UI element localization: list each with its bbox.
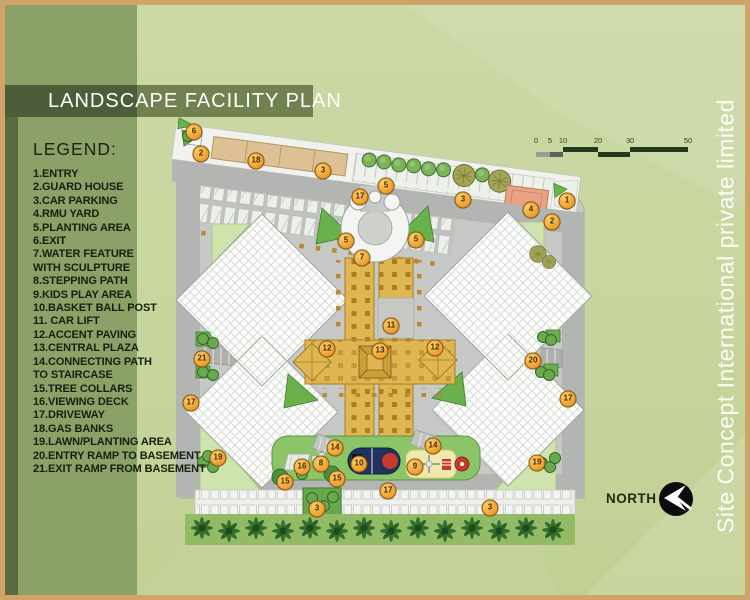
north-indicator: NORTH xyxy=(598,479,718,527)
water-feature xyxy=(341,186,409,262)
legend-item: 19.LAWN/PLANTING AREA xyxy=(33,436,206,449)
amenity-band xyxy=(272,430,480,485)
legend-list: 1.ENTRY2.GUARD HOUSE3.CAR PARKING4.RMU Y… xyxy=(33,168,206,476)
basketball-court xyxy=(348,448,400,474)
legend-item: 6.EXIT xyxy=(33,235,206,248)
legend-item: 12.ACCENT PAVING xyxy=(33,329,206,342)
legend-item: 9.KIDS PLAY AREA xyxy=(33,289,206,302)
scale-label: 5 xyxy=(548,136,552,145)
car-lift xyxy=(378,298,414,338)
legend-item: 15.TREE COLLARS xyxy=(33,383,206,396)
legend-item: 4.RMU YARD xyxy=(33,208,206,221)
legend-item: 10.BASKET BALL POST xyxy=(33,302,206,315)
sidebar-top-block xyxy=(5,5,137,85)
scale-label: 20 xyxy=(594,136,602,145)
scale-bar-segments xyxy=(528,147,703,161)
scale-label: 30 xyxy=(626,136,634,145)
scale-bar: 0510203050 xyxy=(528,136,703,164)
legend-item: TO STAIRCASE xyxy=(33,369,206,382)
site-plan-drawing xyxy=(172,112,612,552)
company-side-text: Site Concept International private limit… xyxy=(713,99,740,533)
north-label: NORTH xyxy=(606,491,657,506)
legend-item: 14.CONNECTING PATH xyxy=(33,356,206,369)
legend-item: 5.PLANTING AREA xyxy=(33,222,206,235)
legend-heading: LEGEND: xyxy=(33,139,117,160)
legend-item: 11. CAR LIFT xyxy=(33,315,206,328)
legend-item: 13.CENTRAL PLAZA xyxy=(33,342,206,355)
legend-item: 7.WATER FEATURE xyxy=(33,248,206,261)
page-title-text: LANDSCAPE FACILITY PLAN xyxy=(48,90,342,112)
kids-play-area xyxy=(406,450,456,478)
legend-item: 16.VIEWING DECK xyxy=(33,396,206,409)
legend-item: 8.STEPPING PATH xyxy=(33,275,206,288)
landscape-plan-sheet: LANDSCAPE FACILITY PLAN LEGEND: 1.ENTRY2… xyxy=(0,0,750,600)
bottom-parking xyxy=(195,488,575,516)
legend-item: 2.GUARD HOUSE xyxy=(33,181,206,194)
legend-item: 17.DRIVEWAY xyxy=(33,409,206,422)
legend-item: WITH SCULPTURE xyxy=(33,262,206,275)
legend-item: 21.EXIT RAMP FROM BASEMENT xyxy=(33,463,206,476)
legend-item: 18.GAS BANKS xyxy=(33,423,206,436)
sidebar-dark-strip xyxy=(5,117,18,595)
scale-label: 10 xyxy=(559,136,567,145)
legend-item: 3.CAR PARKING xyxy=(33,195,206,208)
scale-label: 50 xyxy=(684,136,692,145)
scale-label: 0 xyxy=(534,136,538,145)
north-arrow-icon xyxy=(656,479,696,519)
viewing-deck xyxy=(284,454,310,470)
legend-item: 20.ENTRY RAMP TO BASEMENT xyxy=(33,450,206,463)
lawn-strip xyxy=(185,514,575,545)
legend-item: 1.ENTRY xyxy=(33,168,206,181)
